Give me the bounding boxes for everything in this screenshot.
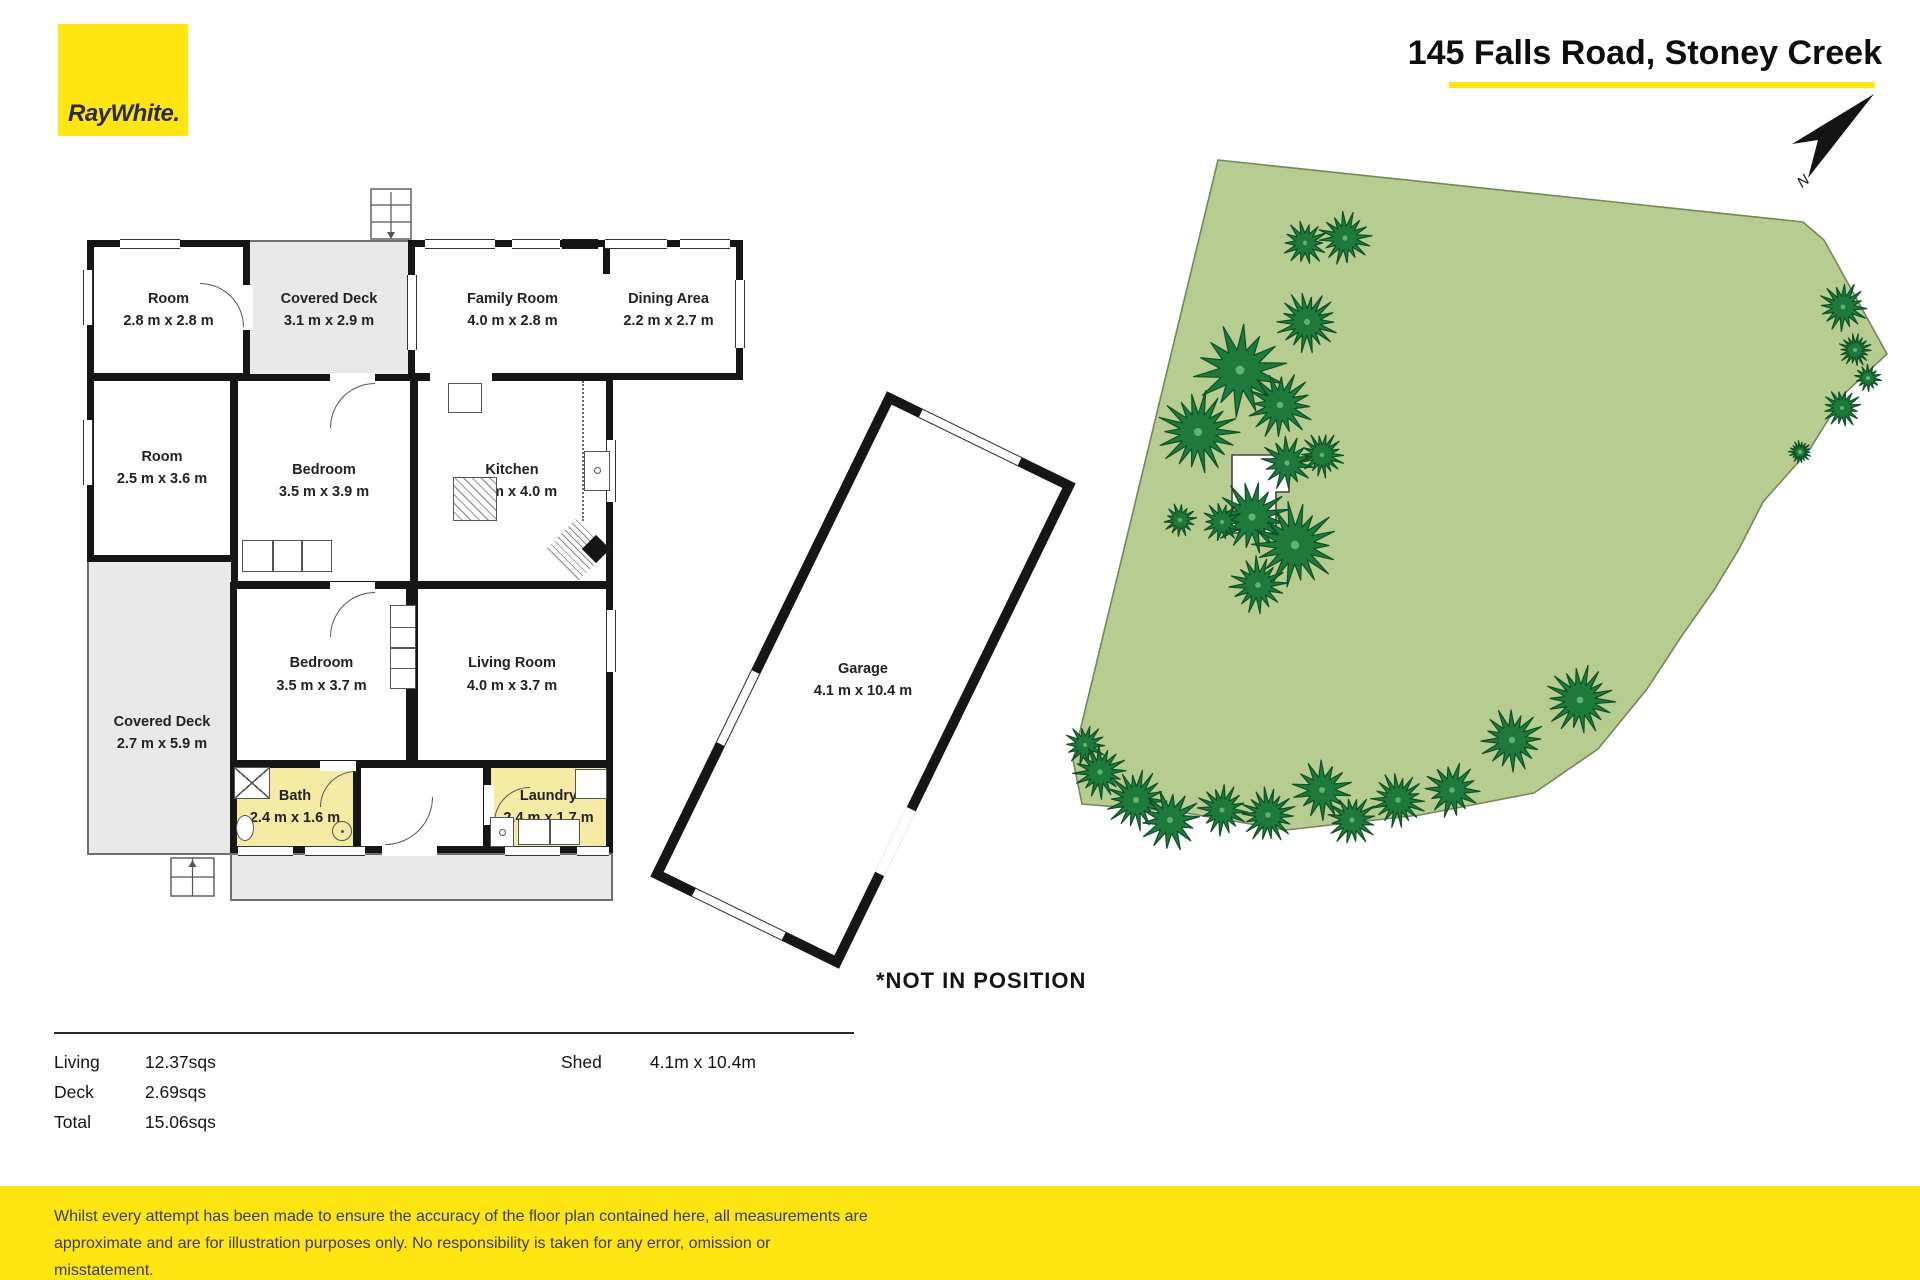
window: [407, 275, 417, 350]
door-opening: [320, 761, 356, 771]
window: [606, 610, 616, 672]
summary-value: 12.37sqs: [145, 1052, 216, 1072]
area-summary: Living 12.37sqs Deck 2.69sqs Total 15.06…: [54, 1052, 216, 1142]
room-covered-deck-top: Covered Deck 3.1 m x 2.9 m: [244, 240, 414, 380]
kitchen-sink: [584, 451, 610, 491]
room-mid: Room 2.5 m x 3.6 m: [87, 374, 237, 562]
window: [680, 239, 730, 249]
laundry-tub: [490, 817, 514, 847]
floor-plan: Covered Deck 3.1 m x 2.9 m Covered Deck …: [80, 185, 770, 920]
room-bedroom-2: Bedroom 3.5 m x 3.7 m: [230, 582, 413, 767]
page-title: 145 Falls Road, Stoney Creek: [1408, 34, 1882, 73]
window: [83, 420, 93, 485]
site-plan: [1060, 140, 1920, 860]
shed-summary: Shed 4.1m x 10.4m: [561, 1052, 756, 1073]
door-opening: [430, 373, 492, 383]
shower: [234, 767, 270, 799]
room-label: Room 2.5 m x 3.6 m: [117, 446, 207, 491]
shed-label: Shed: [561, 1052, 645, 1073]
laundry-bench: [518, 819, 580, 845]
stairs-bottom: [170, 857, 215, 897]
room-label: Bedroom 3.5 m x 3.7 m: [276, 652, 366, 697]
door-opening: [243, 285, 253, 330]
stair-hatch: [453, 477, 497, 521]
room-family-dining: Family Room 4.0 m x 2.8 m Dining Area 2.…: [408, 240, 743, 380]
stairs-top: [370, 188, 412, 240]
room-label: Bedroom 3.5 m x 3.9 m: [279, 459, 369, 504]
summary-row: Deck 2.69sqs: [54, 1082, 216, 1112]
kitchen-cabinet: [448, 383, 482, 413]
window: [238, 846, 293, 856]
room-label: Covered Deck 3.1 m x 2.9 m: [281, 288, 378, 333]
garage-position-note: *NOT IN POSITION: [876, 968, 1086, 994]
laundry-cabinet: [575, 769, 607, 799]
disclaimer-text: Whilst every attempt has been made to en…: [54, 1203, 868, 1280]
page: RayWhite. 145 Falls Road, Stoney Creek N…: [0, 0, 1920, 1280]
wall-segment: [562, 239, 598, 249]
garage-label: Garage 4.1 m x 10.4 m: [768, 420, 958, 940]
summary-label: Total: [54, 1112, 140, 1133]
summary-row: Living 12.37sqs: [54, 1052, 216, 1082]
toilet: [236, 815, 254, 841]
summary-value: 2.69sqs: [145, 1082, 206, 1102]
summary-label: Deck: [54, 1082, 140, 1103]
room-label: Living Room 4.0 m x 3.7 m: [467, 652, 557, 697]
window: [305, 846, 365, 856]
basin: [332, 821, 352, 841]
summary-divider: [54, 1032, 854, 1034]
door-opening: [330, 582, 375, 592]
window: [505, 846, 560, 856]
window: [120, 239, 180, 249]
land-boundary: [1073, 160, 1887, 830]
ray-white-logo: RayWhite.: [58, 24, 188, 136]
entry-opening: [382, 846, 437, 856]
window: [425, 239, 495, 249]
window: [605, 239, 667, 249]
summary-label: Living: [54, 1052, 140, 1073]
wardrobe: [242, 540, 332, 572]
shelves: [390, 605, 416, 689]
room-living: Living Room 4.0 m x 3.7 m: [411, 582, 613, 767]
window: [512, 239, 560, 249]
window: [83, 270, 93, 325]
summary-row: Total 15.06sqs: [54, 1112, 216, 1142]
front-porch: [230, 853, 613, 901]
door-opening: [330, 373, 375, 383]
family-room-label: Family Room 4.0 m x 2.8 m: [415, 247, 610, 373]
room-covered-deck-left: Covered Deck 2.7 m x 5.9 m: [87, 556, 237, 855]
disclaimer-bar: Whilst every attempt has been made to en…: [0, 1186, 1920, 1280]
window: [577, 846, 609, 856]
window: [735, 280, 745, 348]
shed-value: 4.1m x 10.4m: [650, 1052, 756, 1072]
summary-value: 15.06sqs: [145, 1112, 216, 1132]
room-label: Covered Deck 2.7 m x 5.9 m: [114, 711, 211, 756]
dining-area-label: Dining Area 2.2 m x 2.7 m: [601, 247, 736, 373]
ray-white-logo-text: RayWhite.: [68, 100, 180, 128]
